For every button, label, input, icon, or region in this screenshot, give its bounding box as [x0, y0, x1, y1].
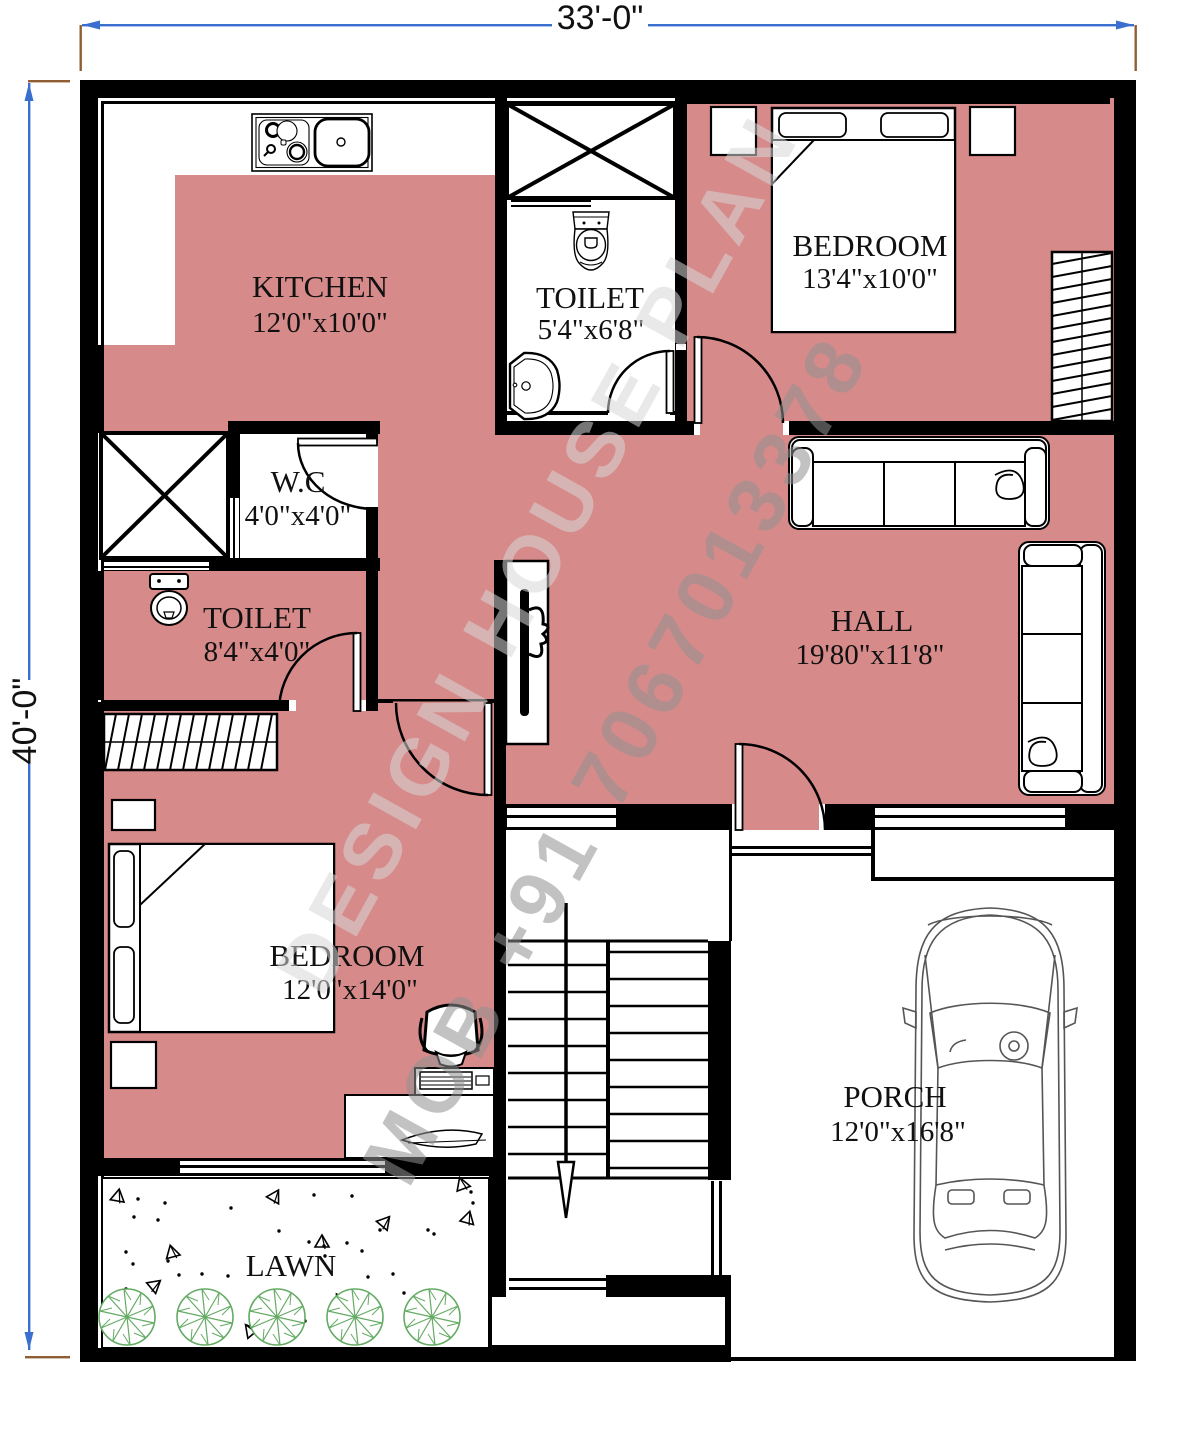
svg-text:BEDROOM: BEDROOM — [792, 228, 947, 263]
svg-text:19'80"x11'8": 19'80"x11'8" — [795, 639, 944, 671]
svg-text:13'4"x10'0": 13'4"x10'0" — [802, 263, 938, 295]
svg-text:40'-0": 40'-0" — [6, 678, 44, 765]
svg-text:HALL: HALL — [831, 603, 914, 638]
svg-text:12'0"x16'8": 12'0"x16'8" — [830, 1116, 966, 1148]
svg-text:TOILET: TOILET — [203, 600, 311, 635]
svg-text:PORCH: PORCH — [843, 1079, 946, 1114]
svg-text:33'-0": 33'-0" — [557, 0, 644, 37]
svg-text:W.C: W.C — [271, 464, 326, 499]
svg-text:KITCHEN: KITCHEN — [252, 269, 388, 304]
svg-text:12'0"x10'0": 12'0"x10'0" — [252, 307, 388, 339]
svg-text:8'4"x4'0": 8'4"x4'0" — [204, 636, 311, 668]
svg-text:LAWN: LAWN — [246, 1248, 337, 1283]
svg-text:4'0"x4'0": 4'0"x4'0" — [245, 500, 352, 532]
